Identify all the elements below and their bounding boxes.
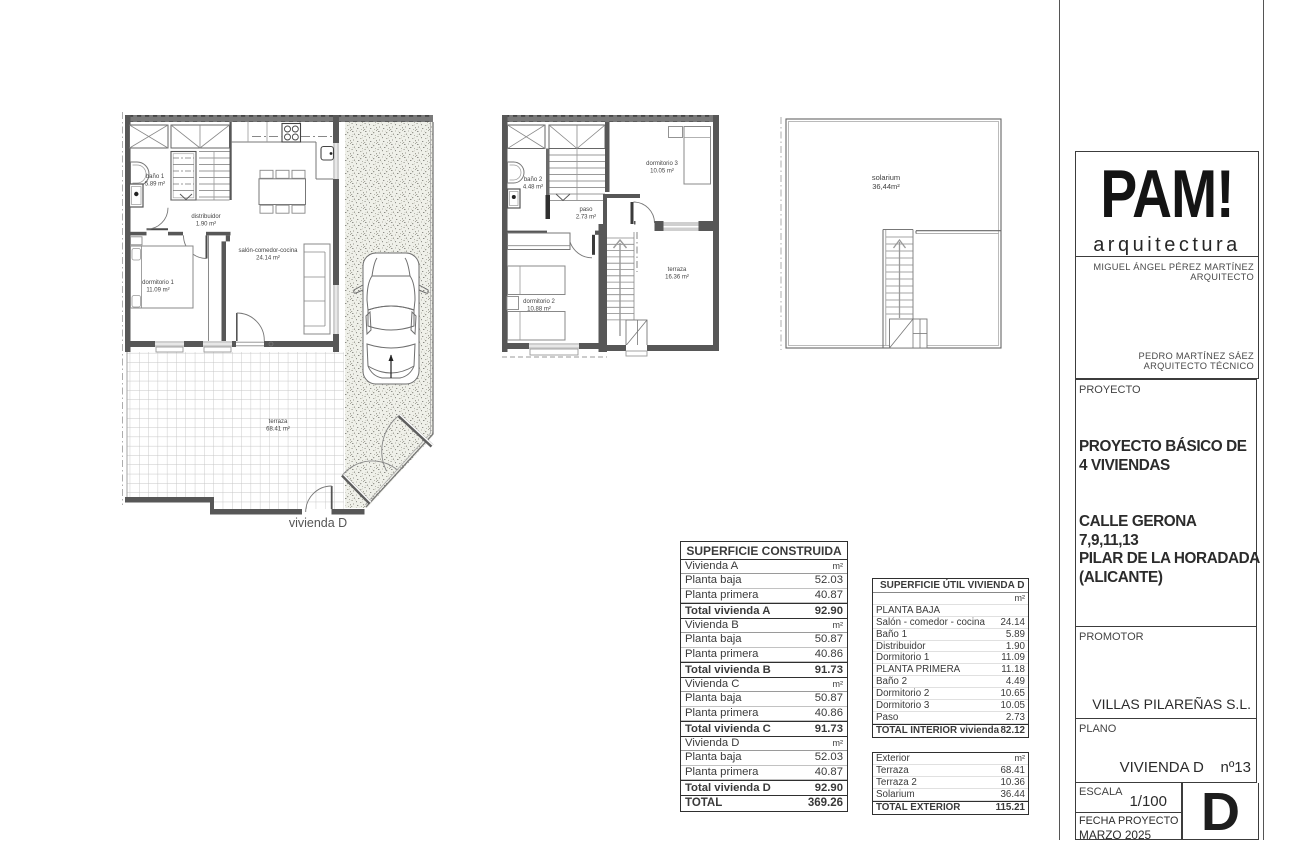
svg-text:36,44m²: 36,44m²	[872, 182, 900, 191]
svg-text:24.14 m²: 24.14 m²	[256, 256, 280, 262]
svg-text:5.89 m²: 5.89 m²	[145, 182, 165, 188]
svg-text:paso: paso	[579, 207, 593, 213]
svg-text:solarium: solarium	[872, 173, 900, 182]
svg-text:10.88 m²: 10.88 m²	[527, 307, 551, 313]
svg-text:baño 1: baño 1	[146, 174, 165, 180]
svg-text:salón-comedor-cocina: salón-comedor-cocina	[238, 248, 298, 254]
svg-text:terraza: terraza	[269, 419, 288, 425]
svg-text:16.36 m²: 16.36 m²	[665, 275, 689, 281]
svg-text:dormitorio 3: dormitorio 3	[646, 161, 678, 167]
svg-text:2.73 m²: 2.73 m²	[576, 215, 596, 221]
svg-text:68.41 m²: 68.41 m²	[266, 427, 290, 433]
svg-text:distribuidor: distribuidor	[191, 214, 220, 220]
svg-text:dormitorio 1: dormitorio 1	[142, 280, 174, 286]
svg-text:dormitorio 2: dormitorio 2	[523, 299, 555, 305]
svg-text:baño 2: baño 2	[524, 177, 543, 183]
svg-text:1.90 m²: 1.90 m²	[196, 222, 216, 228]
svg-text:11.09 m²: 11.09 m²	[146, 288, 169, 294]
svg-text:terraza: terraza	[668, 267, 687, 273]
svg-text:10.05 m²: 10.05 m²	[650, 169, 674, 175]
svg-text:4.48 m²: 4.48 m²	[523, 185, 543, 191]
svg-text:vivienda D: vivienda D	[289, 516, 347, 530]
